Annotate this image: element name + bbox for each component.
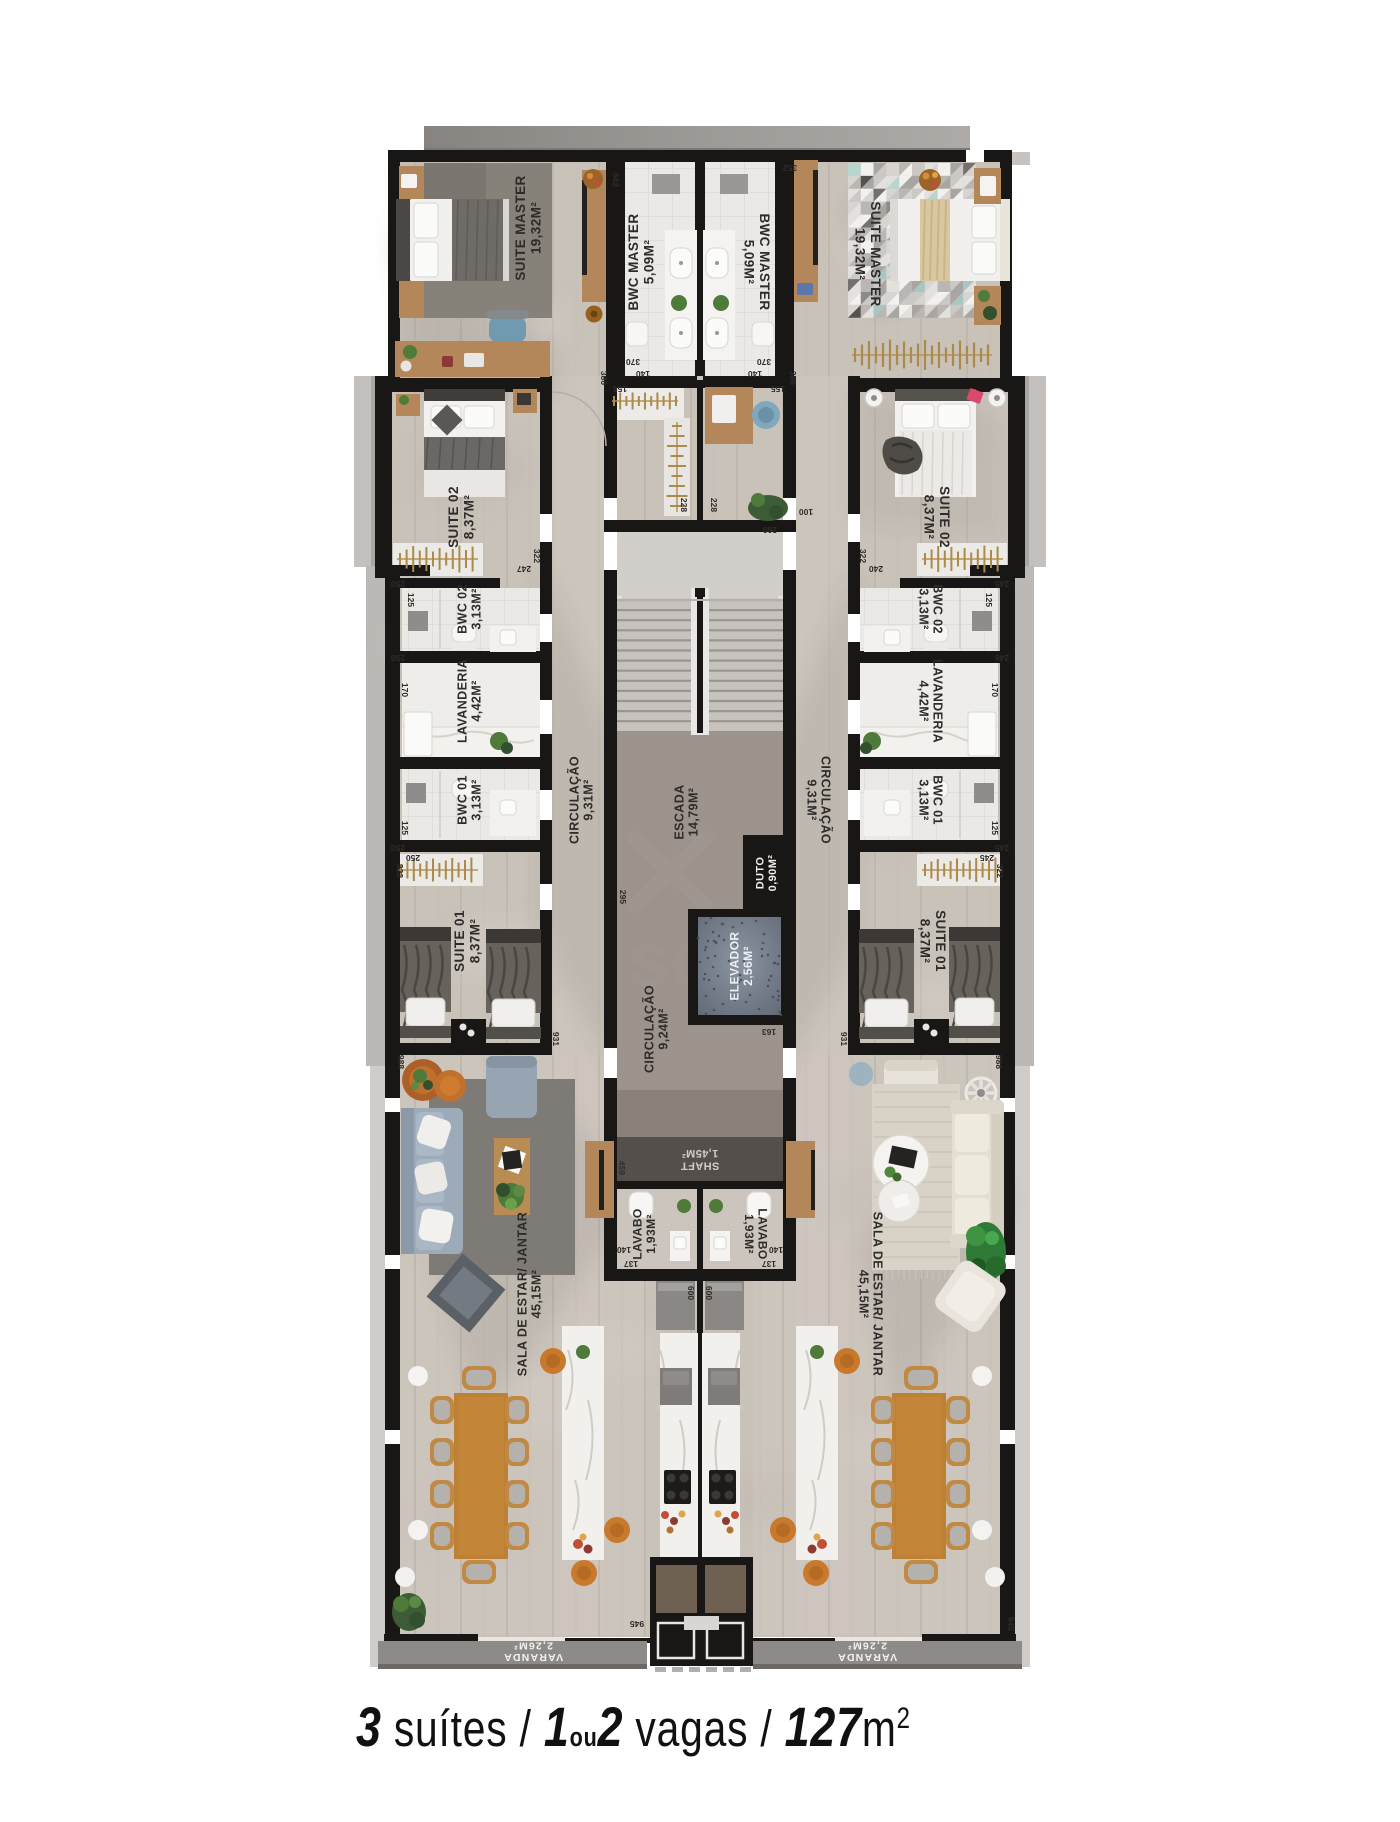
svg-text:245: 245 (995, 653, 1009, 663)
svg-text:295: 295 (618, 890, 628, 904)
svg-text:163: 163 (762, 1027, 776, 1037)
svg-text:170: 170 (400, 683, 410, 697)
svg-text:240: 240 (869, 564, 883, 574)
svg-text:931: 931 (839, 1032, 849, 1046)
svg-text:140: 140 (769, 1245, 783, 1255)
svg-text:BWC 013,13M²: BWC 013,13M² (917, 775, 945, 825)
svg-text:ESCADA14,79M²: ESCADA14,79M² (672, 784, 700, 839)
svg-text:386: 386 (599, 371, 609, 385)
svg-text:322: 322 (395, 864, 405, 878)
svg-text:945: 945 (1006, 1617, 1016, 1631)
svg-text:245: 245 (995, 843, 1009, 853)
svg-text:137: 137 (762, 1259, 776, 1269)
svg-text:125: 125 (400, 821, 410, 835)
svg-text:228: 228 (679, 498, 689, 512)
svg-text:140: 140 (617, 1245, 631, 1255)
svg-text:370: 370 (757, 357, 771, 367)
svg-text:322: 322 (858, 549, 868, 563)
svg-text:322: 322 (995, 864, 1005, 878)
svg-text:370: 370 (626, 357, 640, 367)
svg-text:245: 245 (995, 579, 1009, 589)
svg-text:137: 137 (624, 1259, 638, 1269)
svg-text:155: 155 (613, 384, 627, 394)
svg-text:662: 662 (611, 173, 621, 187)
svg-text:140: 140 (636, 369, 650, 379)
svg-text:322: 322 (532, 549, 542, 563)
svg-text:931: 931 (551, 1032, 561, 1046)
svg-text:352: 352 (783, 163, 797, 173)
svg-text:3 suítes / 1ou2 vagas / 127m2: 3 suítes / 1ou2 vagas / 127m2 (356, 1695, 911, 1758)
svg-text:600: 600 (686, 1286, 696, 1300)
svg-text:125: 125 (990, 821, 1000, 835)
svg-text:125: 125 (984, 593, 994, 607)
svg-text:600: 600 (704, 1286, 714, 1300)
svg-text:BWC 013,13M²: BWC 013,13M² (455, 775, 483, 825)
svg-text:LAVABO1,93M²: LAVABO1,93M² (742, 1208, 769, 1259)
svg-text:250: 250 (391, 843, 405, 853)
svg-text:SUITE 028,37M²: SUITE 028,37M² (446, 486, 476, 548)
svg-text:SUITE 018,37M²: SUITE 018,37M² (918, 910, 948, 972)
svg-text:BWC 023,13M²: BWC 023,13M² (455, 584, 483, 634)
svg-text:DUTO0,90M²: DUTO0,90M² (755, 855, 779, 892)
svg-text:SUITE 018,37M²: SUITE 018,37M² (452, 910, 482, 972)
svg-text:155: 155 (771, 384, 785, 394)
svg-text:459: 459 (617, 1161, 627, 1175)
svg-text:228: 228 (709, 498, 719, 512)
svg-text:125: 125 (406, 593, 416, 607)
svg-text:100: 100 (799, 507, 813, 517)
svg-text:386: 386 (788, 371, 798, 385)
svg-text:250: 250 (391, 653, 405, 663)
svg-text:SHAFT1,45M²: SHAFT1,45M² (681, 1147, 720, 1171)
svg-text:250: 250 (391, 579, 405, 589)
svg-text:988: 988 (396, 1055, 406, 1069)
svg-text:BWC 023,13M²: BWC 023,13M² (917, 584, 945, 634)
svg-text:LAVABO1,93M²: LAVABO1,93M² (631, 1208, 658, 1259)
svg-text:250: 250 (406, 853, 420, 863)
svg-text:170: 170 (990, 683, 1000, 697)
svg-text:945: 945 (630, 1619, 644, 1629)
svg-text:245: 245 (980, 853, 994, 863)
svg-text:988: 988 (994, 1055, 1004, 1069)
svg-text:SUITE 028,37M²: SUITE 028,37M² (922, 486, 952, 548)
svg-text:247: 247 (517, 564, 531, 574)
svg-text:260: 260 (763, 525, 777, 535)
svg-text:140: 140 (748, 369, 762, 379)
